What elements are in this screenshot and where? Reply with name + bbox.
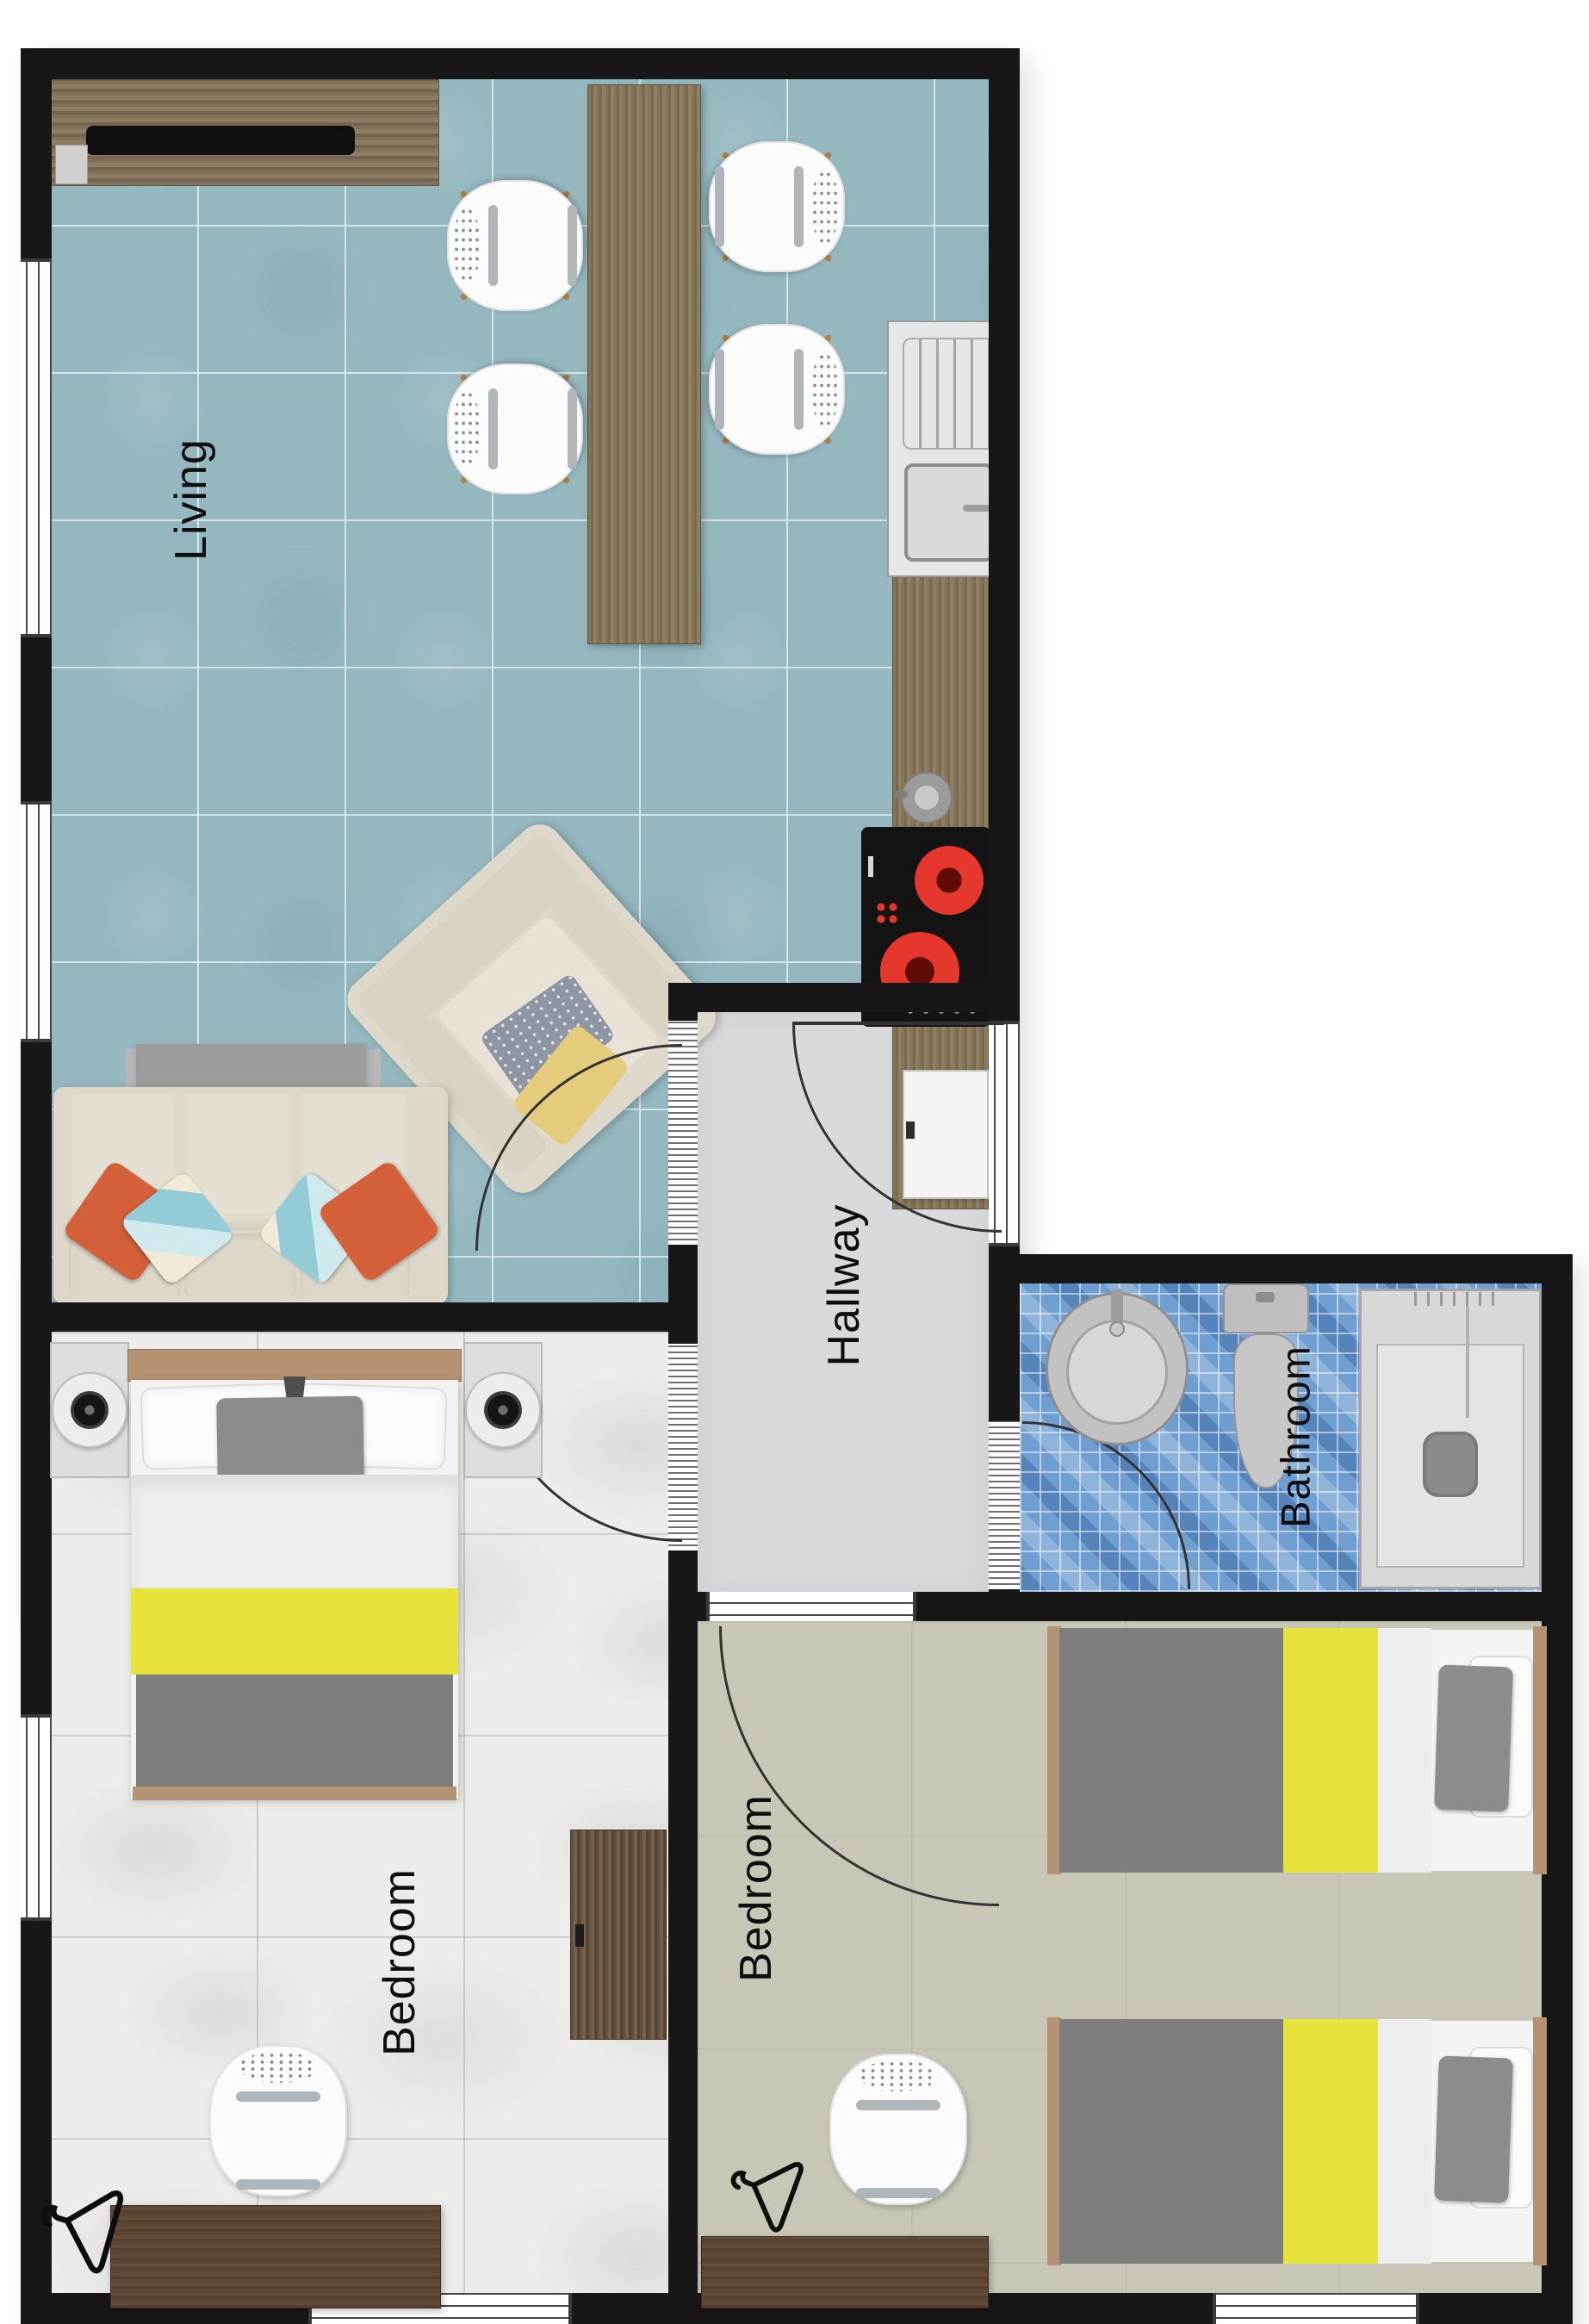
bed-headboard xyxy=(1533,1626,1547,1874)
chair-slot xyxy=(856,2188,941,2198)
bed-blanket xyxy=(1059,2019,1285,2264)
chair-slot xyxy=(794,166,804,247)
burner-small xyxy=(875,901,899,925)
room-label-hallway: Hallway xyxy=(818,1203,870,1366)
sink-drainer xyxy=(903,338,996,450)
shower-head-icon xyxy=(1414,1292,1504,1306)
faucet-icon xyxy=(1111,1289,1123,1325)
desk xyxy=(701,2236,989,2308)
window xyxy=(21,801,52,1042)
bed-runner-yellow xyxy=(1283,1628,1378,1873)
room-label-bathroom: Bathroom xyxy=(1272,1345,1319,1528)
accent-pillow xyxy=(216,1396,364,1483)
dining-chair xyxy=(699,312,854,467)
kettle xyxy=(901,772,953,823)
door-bathroom xyxy=(989,1421,1020,1589)
sink-basin xyxy=(904,463,994,562)
chair-perforation xyxy=(811,352,839,426)
dining-table xyxy=(587,84,701,644)
cooktop-mark xyxy=(868,856,873,877)
wall-bathroom-top xyxy=(989,1254,1573,1283)
chair-slot xyxy=(568,205,577,286)
room-label-bedroom-right: Bedroom xyxy=(730,1794,782,1982)
kettle-handle xyxy=(894,791,908,798)
chair-slot xyxy=(856,2100,941,2110)
tv xyxy=(86,126,355,155)
burner xyxy=(915,846,984,915)
faucet-base xyxy=(1109,1321,1125,1337)
desk-chair xyxy=(196,2035,360,2207)
window xyxy=(706,1592,916,1621)
chair-slot xyxy=(488,388,498,469)
bed-headboard xyxy=(1533,2017,1547,2265)
dining-chair xyxy=(438,351,593,506)
dining-chair xyxy=(438,168,593,323)
bed-blanket xyxy=(1059,1628,1285,1873)
wall-top xyxy=(21,48,1020,79)
window xyxy=(21,1714,52,1921)
chair-perforation xyxy=(239,2052,317,2083)
accent-pillow xyxy=(1434,1665,1513,1812)
bed-runner-yellow xyxy=(131,1588,458,1675)
dresser xyxy=(570,1830,667,2040)
dining-chair xyxy=(699,129,854,284)
accent-pillow xyxy=(1434,2056,1513,2203)
wall-right-upper xyxy=(989,48,1020,1621)
chair-slot xyxy=(236,2179,321,2190)
bed-blanket xyxy=(136,1675,453,1788)
chair-slot xyxy=(715,166,724,247)
toilet-tank xyxy=(1223,1283,1309,1333)
bed-runner-yellow xyxy=(1283,2019,1378,2264)
dresser-handle xyxy=(575,1924,584,1947)
bed-sheet xyxy=(1378,2019,1431,2264)
bed-sheet xyxy=(131,1475,458,1588)
room-label-bedroom-left: Bedroom xyxy=(374,1868,425,2056)
window xyxy=(1213,2293,1419,2324)
chair-slot xyxy=(568,388,577,469)
window xyxy=(21,258,52,637)
table-lamp xyxy=(465,1372,541,1448)
table-lamp xyxy=(52,1372,127,1448)
media-box xyxy=(55,145,88,184)
room-label-living: Living xyxy=(165,438,217,561)
chair-perforation xyxy=(811,170,839,244)
chair-slot xyxy=(488,205,498,286)
toilet-flush-button xyxy=(1256,1292,1275,1302)
wall-hallway-top xyxy=(668,983,1020,1012)
bed-sheet xyxy=(1378,1628,1431,1873)
chair-slot xyxy=(794,349,804,430)
chair-slot xyxy=(236,2091,321,2102)
shower-drain xyxy=(1423,1432,1478,1497)
bed-footboard xyxy=(133,1786,456,1800)
shower-hose xyxy=(1466,1306,1469,1418)
chair-slot xyxy=(715,349,724,430)
floor-plan: Living Hallway Bathroom Bedroom Bedroom xyxy=(0,0,1589,2324)
desk-chair xyxy=(816,2043,980,2215)
wall-living-bedroom xyxy=(21,1302,698,1332)
chair-perforation xyxy=(859,2060,937,2091)
